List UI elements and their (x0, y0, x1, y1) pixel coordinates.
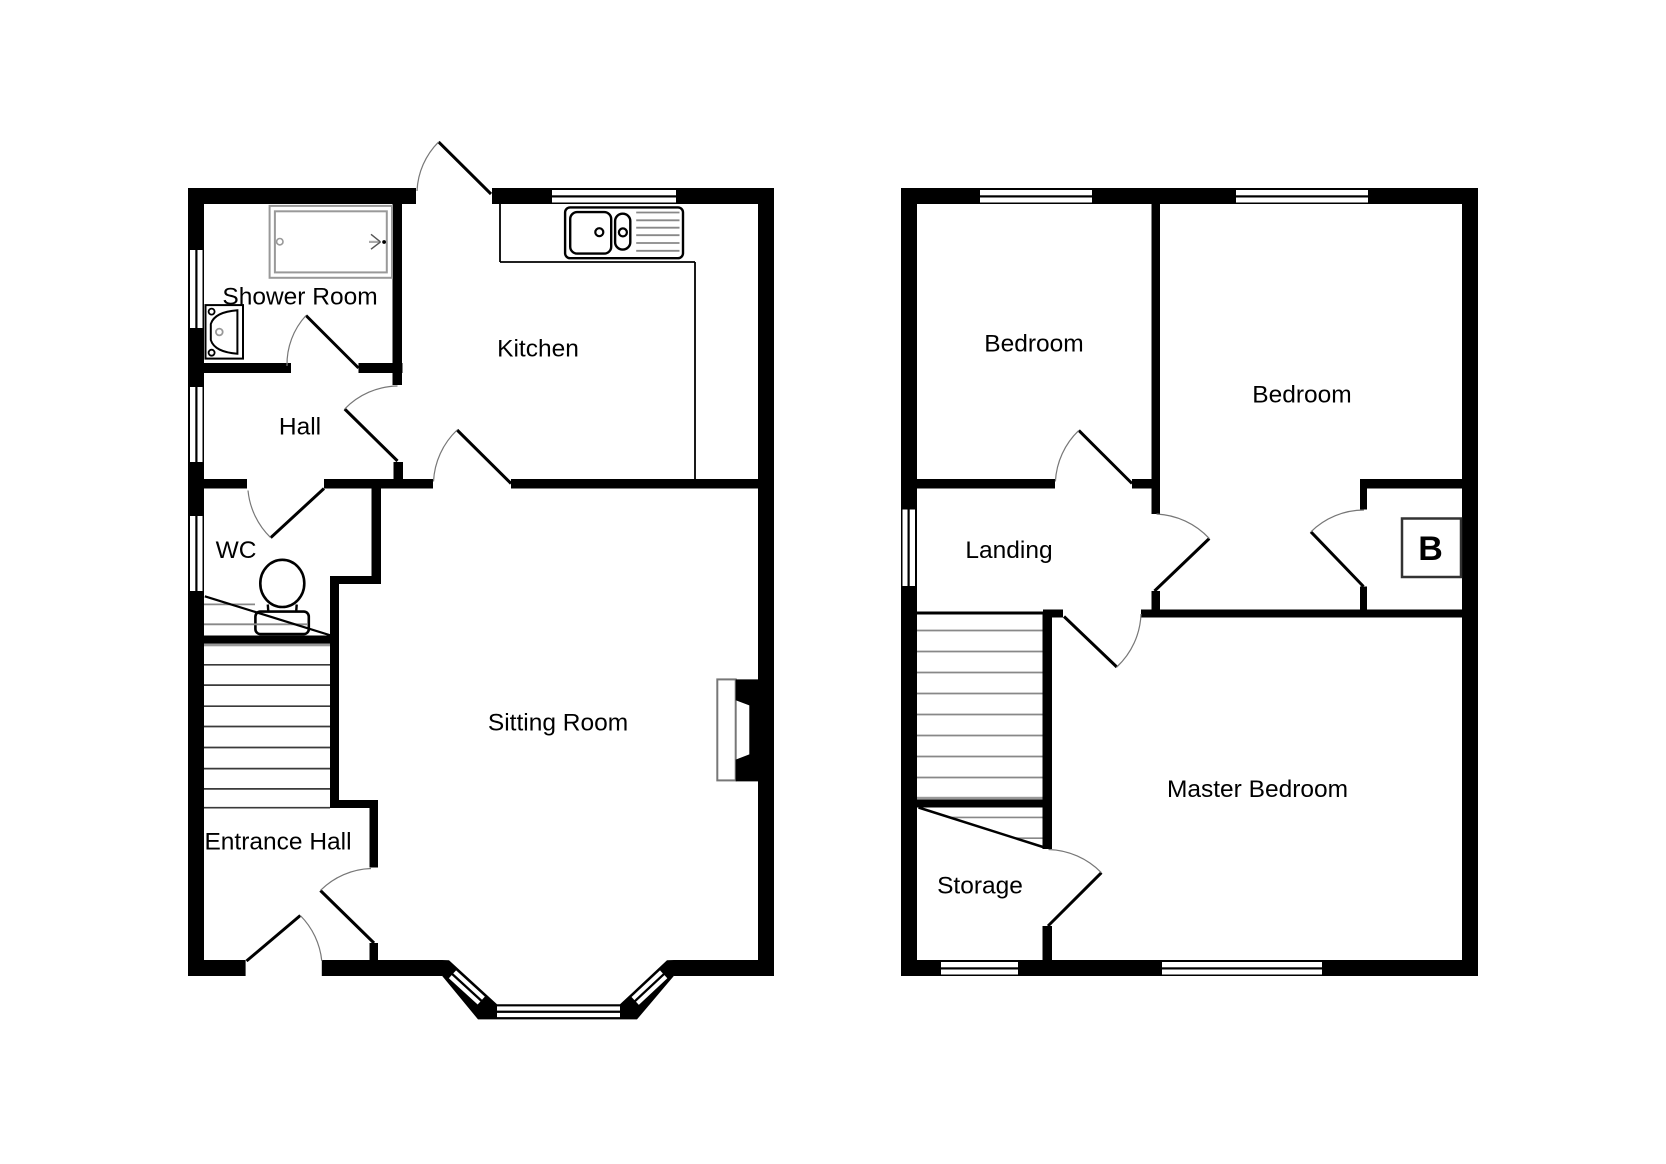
svg-text:Bedroom: Bedroom (1252, 382, 1351, 409)
svg-text:Bedroom: Bedroom (984, 331, 1083, 358)
svg-text:Storage: Storage (937, 873, 1023, 900)
svg-text:WC: WC (216, 537, 257, 564)
svg-text:Entrance Hall: Entrance Hall (204, 829, 351, 856)
svg-text:B: B (1418, 530, 1443, 568)
svg-text:Sitting Room: Sitting Room (488, 710, 628, 737)
svg-text:Hall: Hall (279, 414, 321, 441)
svg-text:Landing: Landing (965, 537, 1052, 564)
svg-text:Shower Room: Shower Room (222, 284, 377, 311)
svg-text:Kitchen: Kitchen (497, 336, 579, 363)
svg-text:Master Bedroom: Master Bedroom (1167, 776, 1348, 803)
